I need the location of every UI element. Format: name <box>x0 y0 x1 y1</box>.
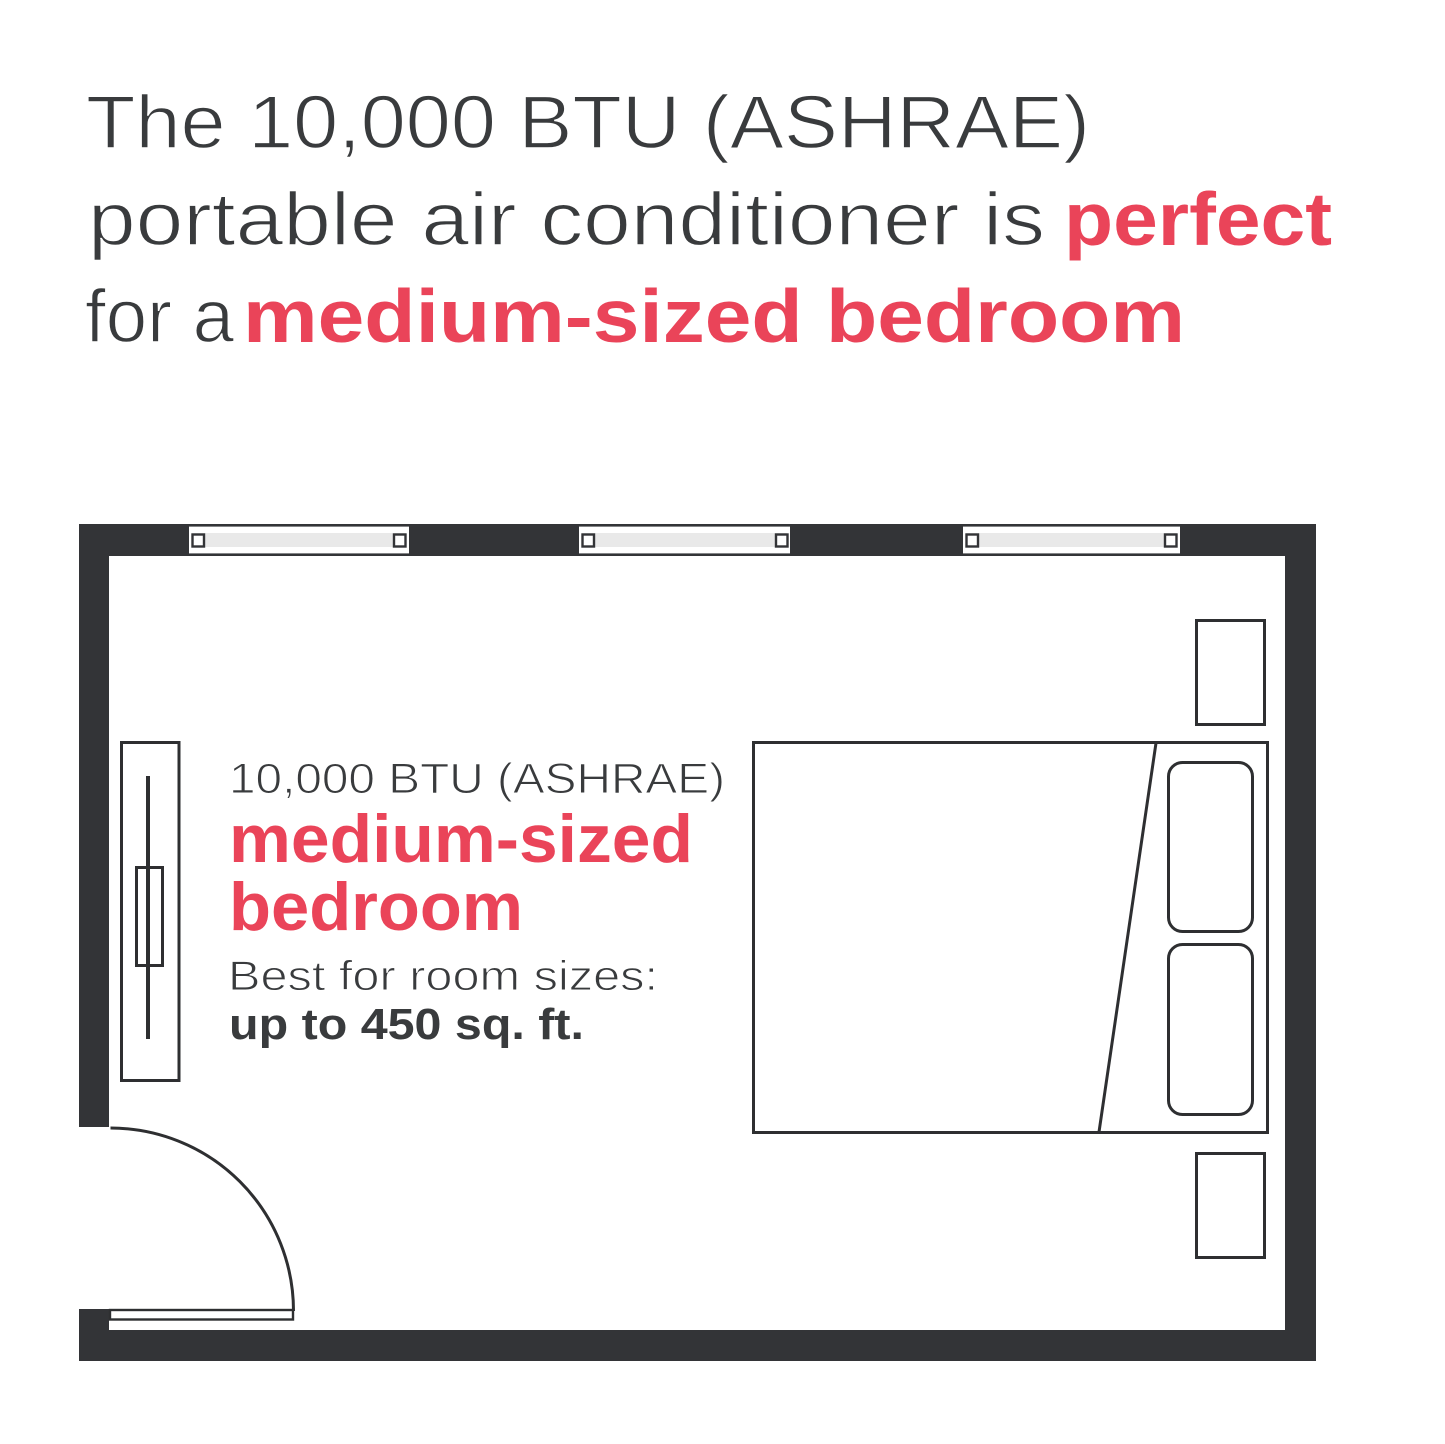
svg-text:portable air conditioner is: portable air conditioner is <box>88 177 1045 261</box>
svg-text:perfect: perfect <box>1064 177 1332 261</box>
svg-text:medium-sized bedroom: medium-sized bedroom <box>243 274 1185 358</box>
svg-text:for a: for a <box>85 274 234 358</box>
svg-text:Best for room sizes:: Best for room sizes: <box>228 952 658 999</box>
svg-text:up to 450 sq. ft.: up to 450 sq. ft. <box>229 1000 584 1049</box>
svg-text:10,000 BTU (ASHRAE): 10,000 BTU (ASHRAE) <box>229 755 725 803</box>
svg-text:The 10,000 BTU (ASHRAE): The 10,000 BTU (ASHRAE) <box>86 80 1090 164</box>
svg-text:medium-sized: medium-sized <box>229 801 693 877</box>
svg-text:bedroom: bedroom <box>229 869 523 945</box>
